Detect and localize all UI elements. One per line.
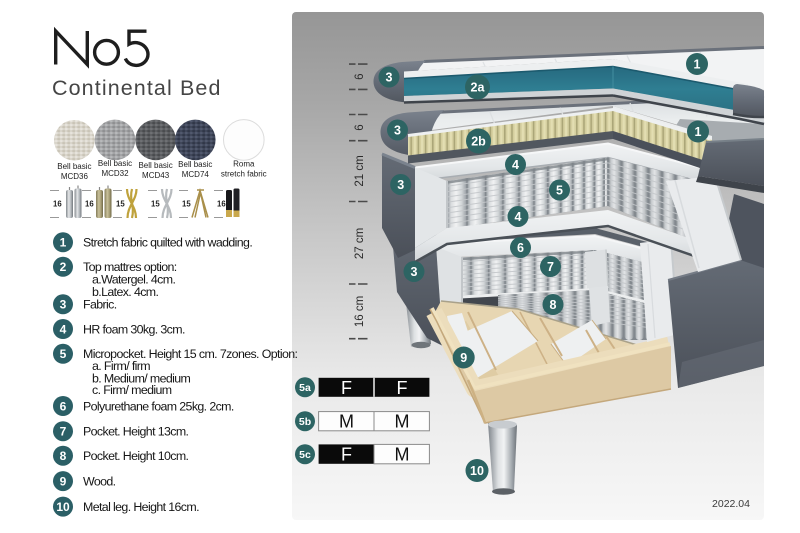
svg-text:5: 5 xyxy=(556,184,563,198)
svg-text:Fabric.: Fabric. xyxy=(83,298,117,312)
svg-text:4: 4 xyxy=(515,210,522,224)
svg-text:Metal leg. Height 16cm.: Metal leg. Height 16cm. xyxy=(83,500,199,514)
svg-text:2022.04: 2022.04 xyxy=(712,498,750,510)
svg-text:Bell basic: Bell basic xyxy=(57,162,91,171)
svg-text:3: 3 xyxy=(411,265,418,279)
svg-text:MCD74: MCD74 xyxy=(182,170,210,179)
svg-text:stretch fabric: stretch fabric xyxy=(221,170,267,179)
svg-text:2: 2 xyxy=(60,260,67,274)
svg-text:6: 6 xyxy=(354,124,366,130)
svg-text:F: F xyxy=(341,378,352,398)
svg-text:3: 3 xyxy=(386,71,393,85)
svg-text:5b: 5b xyxy=(299,416,311,428)
svg-text:MCD32: MCD32 xyxy=(101,169,129,178)
svg-text:Stretch fabric quilted with wa: Stretch fabric quilted with wadding. xyxy=(83,236,252,250)
svg-text:6: 6 xyxy=(60,399,67,413)
svg-text:M: M xyxy=(395,412,410,432)
svg-text:7: 7 xyxy=(547,260,554,274)
svg-text:3: 3 xyxy=(394,124,401,138)
svg-text:15: 15 xyxy=(116,200,125,209)
svg-text:Pocket. Height 10cm.: Pocket. Height 10cm. xyxy=(83,449,189,463)
svg-text:Bell basic: Bell basic xyxy=(98,159,132,168)
svg-text:Bell basic: Bell basic xyxy=(138,161,172,170)
svg-text:4: 4 xyxy=(60,322,67,336)
svg-text:9: 9 xyxy=(460,351,467,365)
svg-text:16 cm: 16 cm xyxy=(354,296,366,327)
svg-text:MCD43: MCD43 xyxy=(142,171,170,180)
svg-text:8: 8 xyxy=(60,449,67,463)
svg-text:1: 1 xyxy=(695,125,702,139)
svg-text:8: 8 xyxy=(550,298,557,312)
svg-text:7: 7 xyxy=(60,425,67,439)
svg-text:3: 3 xyxy=(60,298,67,312)
svg-text:2b: 2b xyxy=(471,135,486,149)
svg-text:4: 4 xyxy=(512,158,519,172)
svg-text:Pocket. Height 13cm.: Pocket. Height 13cm. xyxy=(83,425,189,439)
svg-text:15: 15 xyxy=(151,200,160,209)
svg-text:Roma: Roma xyxy=(233,160,255,169)
svg-text:16: 16 xyxy=(85,200,94,209)
svg-text:6: 6 xyxy=(517,241,524,255)
svg-text:2a: 2a xyxy=(471,81,486,95)
svg-text:10: 10 xyxy=(470,464,484,478)
svg-text:M: M xyxy=(339,412,354,432)
svg-text:F: F xyxy=(397,378,408,398)
svg-text:Continental Bed: Continental Bed xyxy=(52,76,222,100)
svg-text:HR foam 30kg. 3cm.: HR foam 30kg. 3cm. xyxy=(83,322,185,336)
svg-text:27 cm: 27 cm xyxy=(354,228,366,259)
svg-text:M: M xyxy=(395,444,410,464)
svg-text:10: 10 xyxy=(56,500,70,514)
svg-text:15: 15 xyxy=(182,200,191,209)
svg-text:F: F xyxy=(341,444,352,464)
svg-text:16: 16 xyxy=(53,200,62,209)
svg-text:21 cm: 21 cm xyxy=(354,155,366,186)
svg-text:16: 16 xyxy=(217,200,226,209)
svg-text:1: 1 xyxy=(694,58,701,72)
svg-text:c. Firm/ medium: c. Firm/ medium xyxy=(92,383,172,397)
svg-text:Polyurethane foam 25kg. 2cm.: Polyurethane foam 25kg. 2cm. xyxy=(83,399,234,413)
svg-text:5: 5 xyxy=(60,347,67,361)
svg-text:5c: 5c xyxy=(299,449,311,461)
svg-text:Wood.: Wood. xyxy=(83,475,116,489)
svg-text:5a: 5a xyxy=(299,382,311,394)
svg-text:3: 3 xyxy=(397,178,404,192)
svg-text:1: 1 xyxy=(60,236,67,250)
svg-text:Bell basic: Bell basic xyxy=(178,160,212,169)
svg-text:MCD36: MCD36 xyxy=(61,172,89,181)
svg-text:6: 6 xyxy=(354,73,366,79)
svg-text:9: 9 xyxy=(60,474,67,488)
